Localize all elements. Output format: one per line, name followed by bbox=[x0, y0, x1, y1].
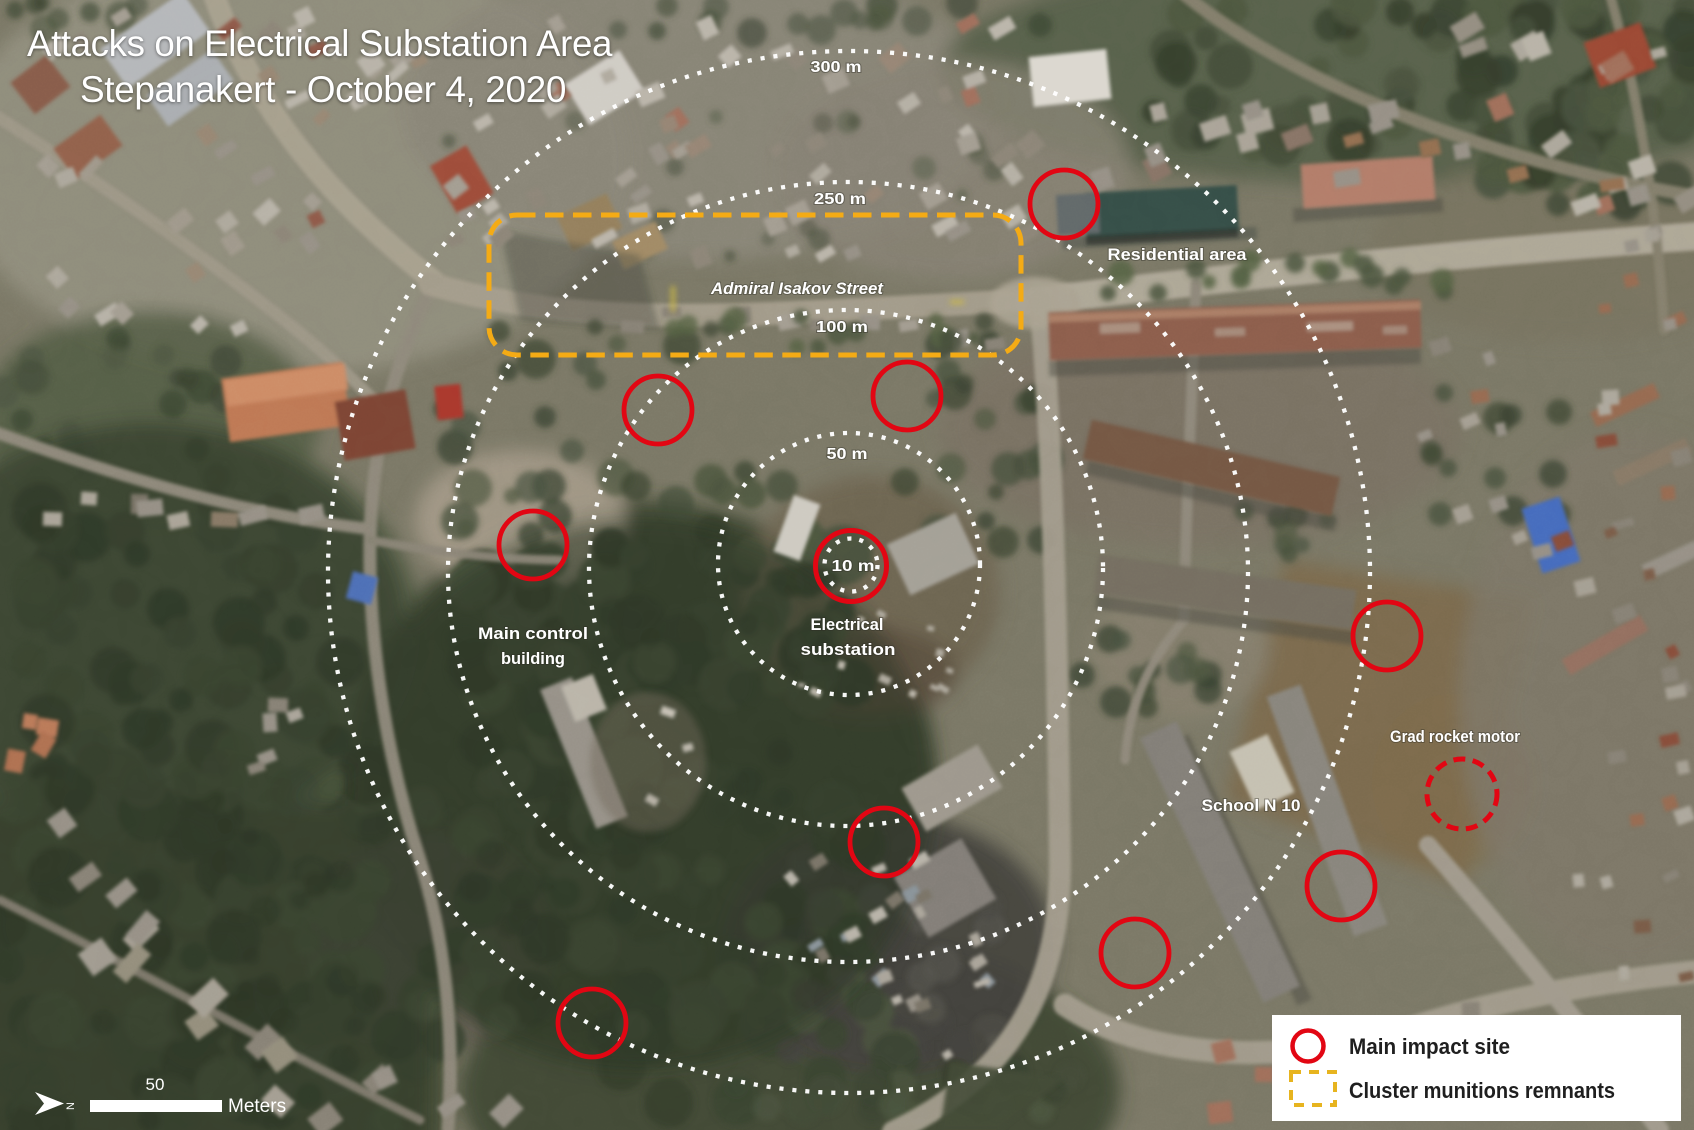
svg-text:Residential area: Residential area bbox=[1108, 245, 1248, 264]
svg-text:300 m: 300 m bbox=[811, 59, 862, 76]
svg-text:Admiral Isakov Street: Admiral Isakov Street bbox=[710, 279, 884, 298]
svg-text:Electrical: Electrical bbox=[811, 616, 884, 634]
svg-text:100 m: 100 m bbox=[816, 319, 868, 336]
svg-text:Attacks on Electrical Substati: Attacks on Electrical Substation Area bbox=[27, 23, 613, 64]
svg-text:substation: substation bbox=[801, 641, 896, 659]
svg-text:building: building bbox=[501, 650, 565, 668]
svg-text:250 m: 250 m bbox=[814, 191, 866, 208]
svg-text:Main impact site: Main impact site bbox=[1349, 1034, 1510, 1059]
svg-text:Grad rocket motor: Grad rocket motor bbox=[1390, 728, 1521, 746]
svg-text:N: N bbox=[65, 1102, 77, 1110]
svg-text:50: 50 bbox=[146, 1075, 165, 1094]
svg-text:10 m: 10 m bbox=[832, 558, 875, 575]
svg-text:Main control: Main control bbox=[478, 625, 588, 643]
svg-text:School N 10: School N 10 bbox=[1202, 797, 1301, 815]
svg-text:Cluster munitions remnants: Cluster munitions remnants bbox=[1349, 1078, 1615, 1103]
svg-text:Meters: Meters bbox=[228, 1096, 286, 1117]
svg-text:50 m: 50 m bbox=[827, 446, 868, 463]
svg-text:Stepanakert - October 4, 2020: Stepanakert - October 4, 2020 bbox=[80, 69, 566, 110]
